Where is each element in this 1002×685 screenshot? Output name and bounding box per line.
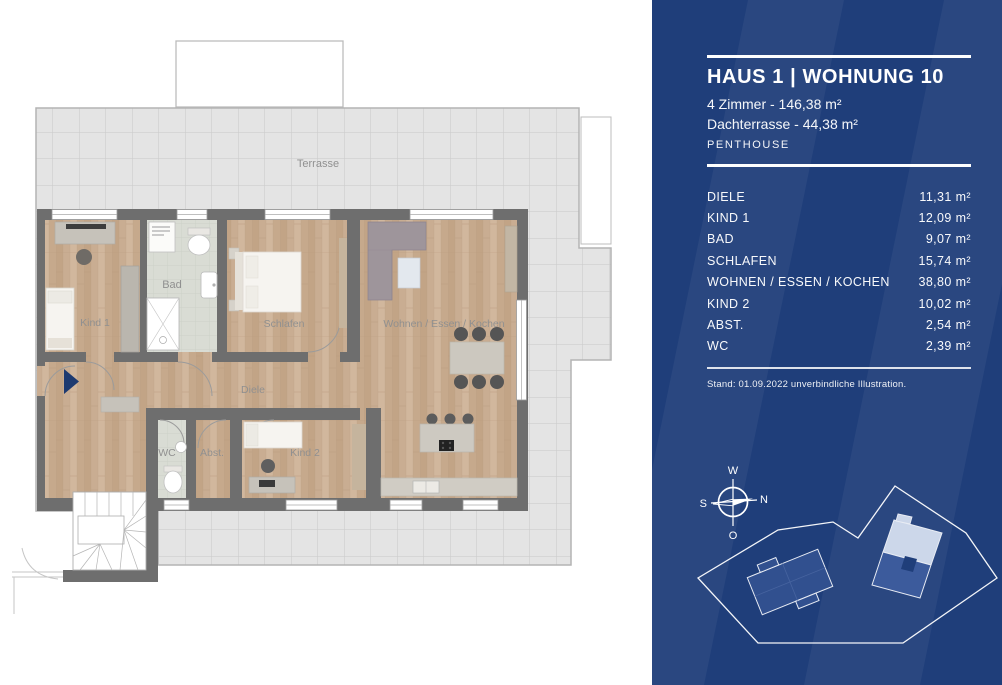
- roof-notch: [581, 117, 611, 244]
- sideboard-tall: [505, 226, 517, 292]
- table-row: ABST. 2,54 m²: [707, 314, 971, 335]
- compass-o: O: [729, 530, 738, 542]
- apartment-type: PENTHOUSE: [707, 139, 971, 151]
- room-name: WC: [707, 339, 729, 353]
- diele-floor: [45, 362, 347, 408]
- desk-chair: [76, 249, 92, 265]
- room-area: 2,54 m²: [926, 318, 971, 332]
- divider: [707, 367, 971, 369]
- table-row: KIND 2 10,02 m²: [707, 293, 971, 314]
- room-area: 11,31 m²: [919, 190, 971, 204]
- status-note: Stand: 01.09.2022 unverbindliche Illustr…: [707, 379, 971, 390]
- kind2-label: Kind 2: [290, 447, 320, 459]
- coffee-table: [398, 258, 420, 288]
- schlafen-label: Schlafen: [264, 318, 305, 330]
- table-row: SCHLAFEN 15,74 m²: [707, 250, 971, 271]
- room-area: 2,39 m²: [926, 339, 971, 353]
- wardrobe-schlafen: [339, 238, 347, 328]
- rooms-size-line: 4 Zimmer - 146,38 m²: [707, 96, 971, 112]
- wc-label: WC: [158, 447, 176, 459]
- room-name: WOHNEN / ESSEN / KOCHEN: [707, 275, 890, 289]
- room-name: KIND 1: [707, 211, 750, 225]
- lower-floor-outline: [12, 548, 63, 614]
- cooktop: [439, 440, 454, 451]
- kitchen-counter: [381, 478, 517, 496]
- wardrobe-kind2: [352, 424, 366, 490]
- table-row: DIELE 11,31 m²: [707, 186, 971, 207]
- terrace-label: Terrasse: [297, 158, 339, 170]
- kind1-label: Kind 1: [80, 317, 110, 329]
- divider: [707, 55, 971, 58]
- wohnen-label: Wohnen / Essen / Kochen: [383, 318, 504, 330]
- room-area-table: DIELE 11,31 m² KIND 1 12,09 m² BAD 9,07 …: [707, 186, 971, 357]
- desk-chair-kind2: [261, 459, 275, 473]
- room-name: ABST.: [707, 318, 744, 332]
- room-area: 9,07 m²: [926, 232, 971, 246]
- divider: [707, 164, 971, 167]
- room-name: KIND 2: [707, 297, 750, 311]
- toilet-wc: [164, 471, 182, 493]
- room-area: 10,02 m²: [918, 297, 971, 311]
- wardrobe: [121, 266, 139, 352]
- basin-wc: [176, 442, 187, 453]
- roof-outline: [176, 41, 343, 107]
- terrace-size-line: Dachterrasse - 44,38 m²: [707, 116, 971, 132]
- sideboard-diele: [101, 397, 139, 412]
- room-area: 12,09 m²: [918, 211, 971, 225]
- abst-floor: [196, 420, 230, 498]
- info-panel: W N S O: [652, 0, 1002, 685]
- table-row: BAD 9,07 m²: [707, 229, 971, 250]
- dining-table: [450, 342, 504, 374]
- abst-label: Abst.: [200, 447, 224, 459]
- table-row: KIND 1 12,09 m²: [707, 207, 971, 228]
- diele-label: Diele: [241, 384, 265, 396]
- room-name: SCHLAFEN: [707, 254, 777, 268]
- room-area: 15,74 m²: [918, 254, 971, 268]
- compass-n: N: [760, 494, 768, 506]
- bad-label: Bad: [162, 279, 182, 291]
- page-title: HAUS 1 | WOHNUNG 10: [707, 66, 971, 89]
- stairwell: [73, 492, 146, 570]
- table-row: WOHNEN / ESSEN / KOCHEN 38,80 m²: [707, 272, 971, 293]
- floorplan-sheet: Terrasse: [0, 0, 1002, 685]
- room-name: BAD: [707, 232, 734, 246]
- room-area: 38,80 m²: [918, 275, 971, 289]
- compass-s: S: [700, 498, 707, 510]
- table-row: WC 2,39 m²: [707, 336, 971, 357]
- compass-w: W: [728, 465, 739, 477]
- toilet: [188, 235, 210, 255]
- room-name: DIELE: [707, 190, 745, 204]
- floor-plan: Terrasse: [0, 0, 655, 685]
